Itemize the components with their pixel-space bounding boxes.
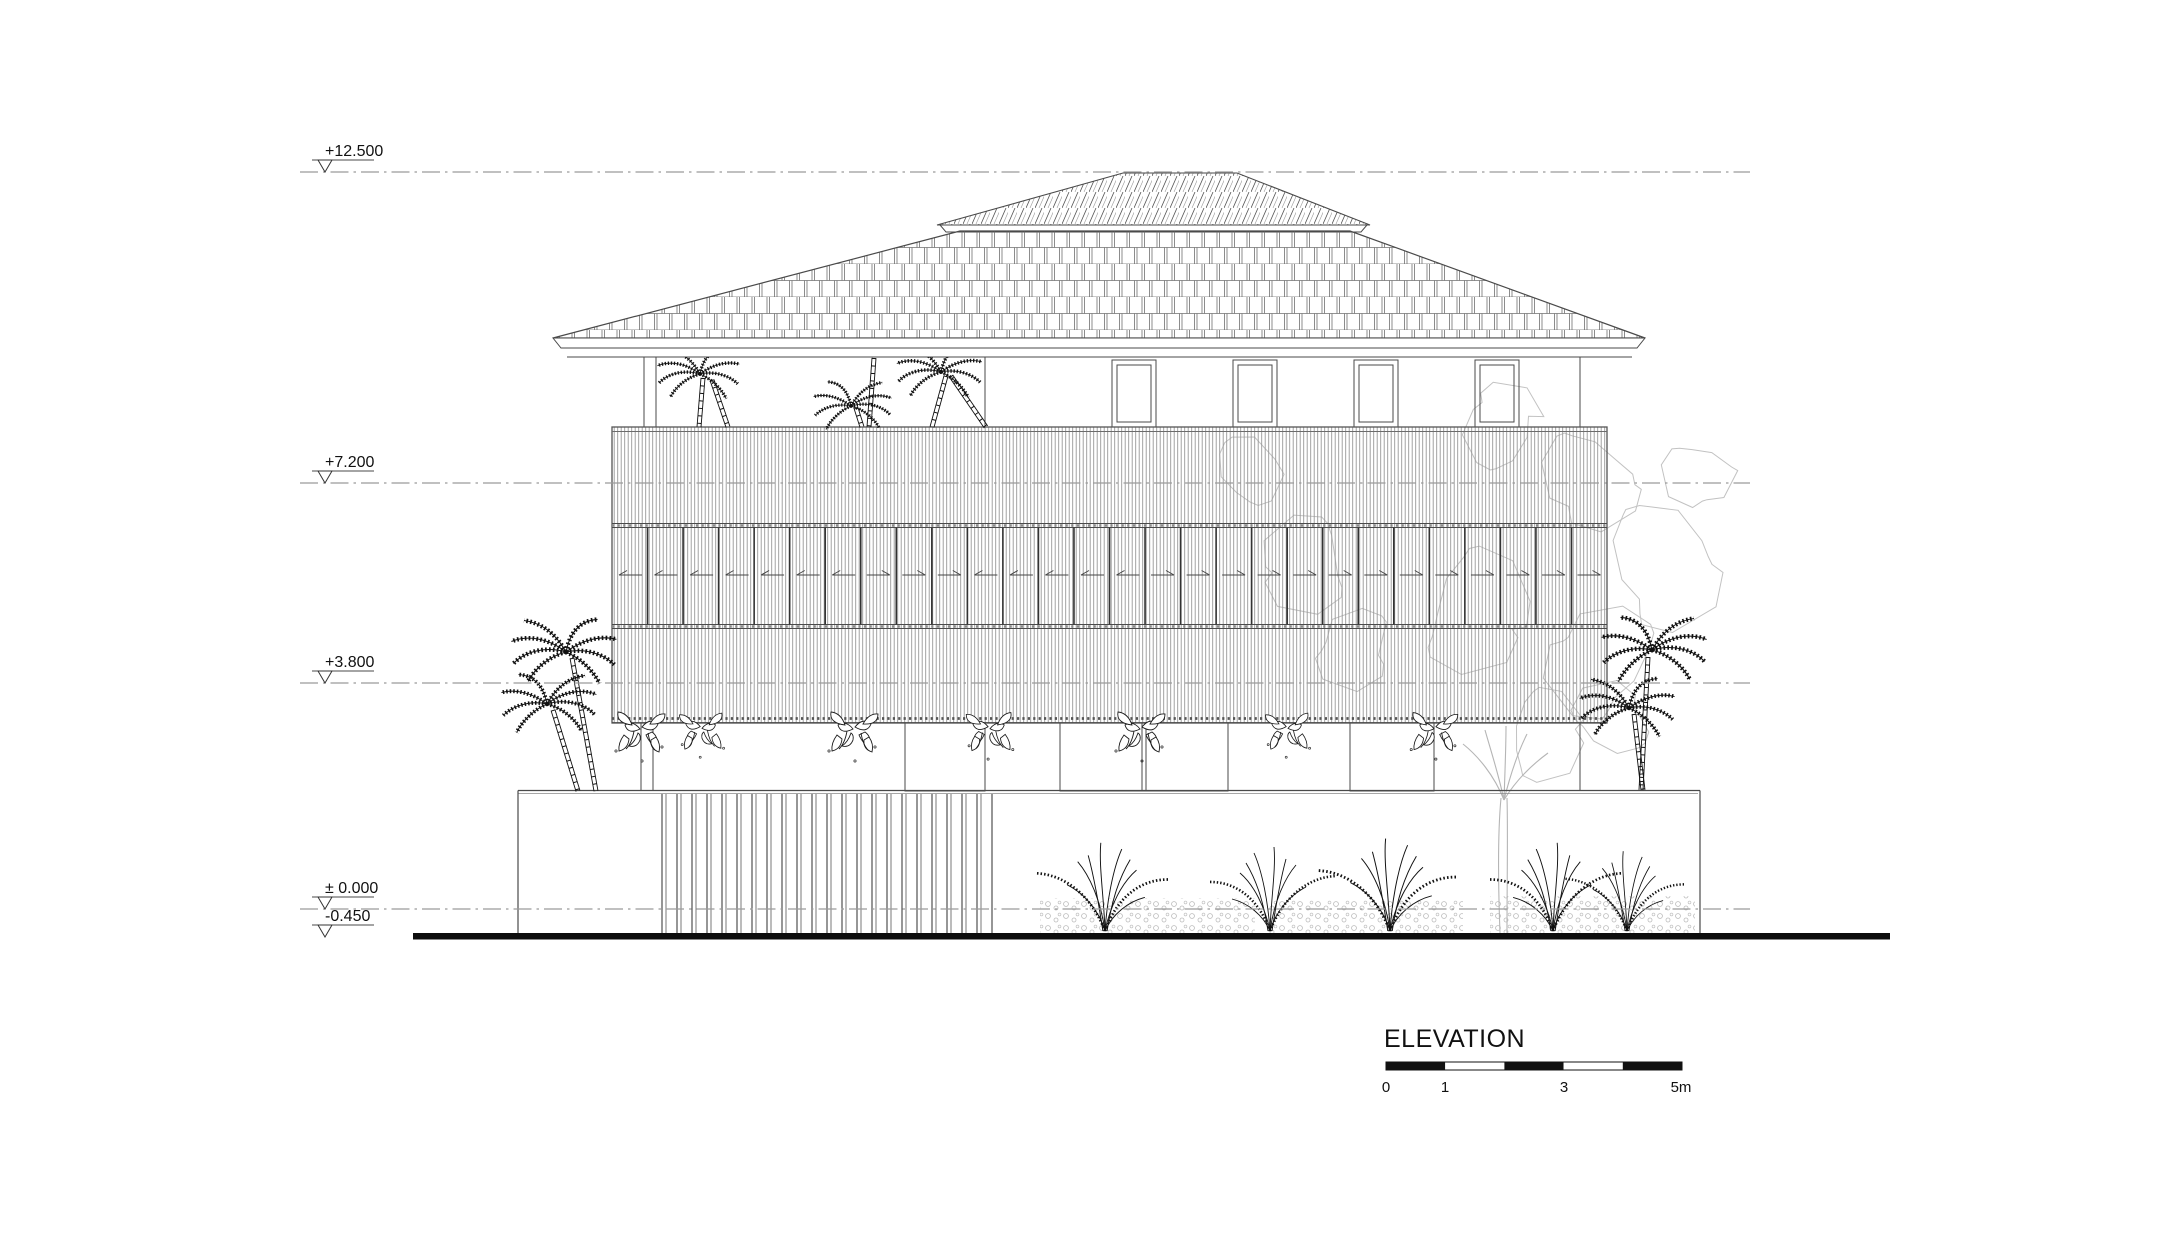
level-label: +12.500	[325, 143, 383, 160]
scale-label-5m: 5m	[1671, 1079, 1692, 1096]
palm-crown	[511, 619, 616, 683]
louver-panel	[905, 723, 985, 791]
groundcover	[1268, 900, 1463, 933]
level-label: +3.800	[325, 654, 374, 671]
building-elevation	[413, 173, 1890, 940]
clerestory	[644, 357, 1580, 427]
scale-label-3: 3	[1560, 1079, 1568, 1096]
entry-doors	[1060, 723, 1228, 791]
drawing-title: ELEVATION	[1384, 1025, 1525, 1053]
groundcover	[1490, 896, 1695, 933]
palm-trunk	[930, 375, 948, 427]
clerestory-window	[1233, 360, 1277, 427]
clerestory-window	[1112, 360, 1156, 427]
elevation-sheet: +12.500 +7.200 +3.800 ± 0.000 -0.450 ELE…	[0, 0, 2183, 1237]
elevation-drawing: +12.500 +7.200 +3.800 ± 0.000 -0.450 ELE…	[0, 0, 2183, 1237]
clerestory-window	[1354, 360, 1398, 427]
title-block: ELEVATION 0 1 3 5m	[1382, 1025, 1692, 1096]
background-tree-outline	[1661, 448, 1737, 507]
scale-bar: 0 1 3 5m	[1382, 1062, 1692, 1096]
level-label: -0.450	[325, 908, 370, 925]
clerestory-window	[1475, 360, 1519, 427]
main-roof	[553, 231, 1645, 357]
level-marker: -0.450	[312, 908, 374, 937]
slat-fence	[653, 794, 995, 933]
palm-trunk	[949, 375, 987, 428]
groundcover	[1040, 898, 1255, 933]
scale-label-1: 1	[1441, 1079, 1449, 1096]
scale-label-0: 0	[1382, 1079, 1390, 1096]
lantern-roof	[937, 173, 1370, 232]
background-tree-outline	[1613, 506, 1723, 633]
palm-trunk	[697, 378, 705, 427]
glazed-panel	[1350, 723, 1434, 791]
palm-trunk	[710, 379, 730, 427]
level-label: ± 0.000	[325, 880, 378, 897]
palm-crown	[1602, 617, 1707, 681]
ground-line	[413, 933, 1890, 940]
eave-fascia	[553, 338, 1645, 348]
level-label: +7.200	[325, 454, 374, 471]
first-floor-wall	[641, 723, 1580, 791]
louver-screen	[612, 427, 1607, 723]
level-marker: +12.500	[300, 143, 1750, 172]
